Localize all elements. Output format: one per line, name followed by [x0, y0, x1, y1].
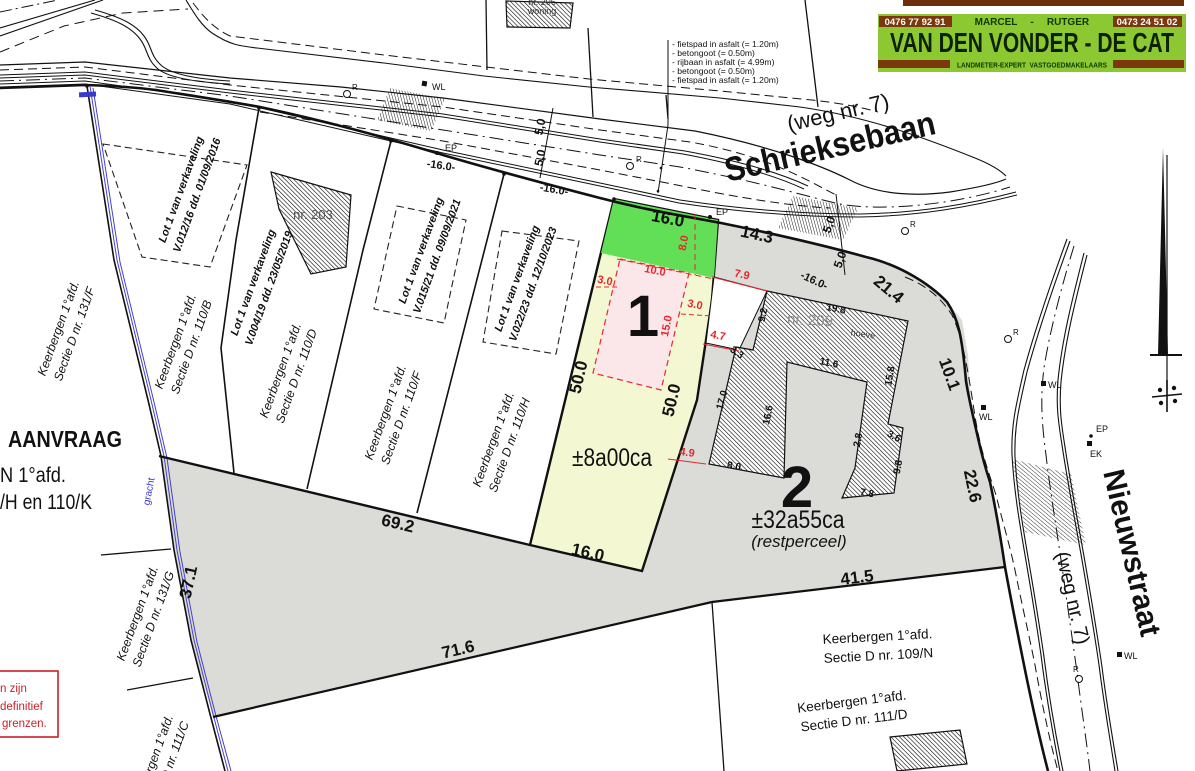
svg-text:EP: EP	[716, 207, 728, 217]
svg-text:/H en 110/K: /H en 110/K	[0, 491, 92, 514]
svg-text:nr. 209: nr. 209	[787, 311, 834, 330]
svg-text:R: R	[352, 83, 358, 92]
svg-text:R: R	[636, 155, 642, 164]
svg-text:EP: EP	[1096, 424, 1108, 434]
svg-text:WL: WL	[432, 82, 446, 92]
svg-text:1: 1	[627, 284, 659, 349]
svg-text:WL: WL	[1124, 651, 1138, 661]
svg-text:n zijn: n zijn	[0, 683, 27, 695]
svg-text:LANDMETER-EXPERT VASTGOEDMAKE: LANDMETER-EXPERT VASTGOEDMAKELAARS	[957, 61, 1107, 70]
svg-text:nr. 203: nr. 203	[293, 207, 333, 222]
svg-text:N 1°afd.: N 1°afd.	[0, 464, 66, 487]
svg-text:41.5: 41.5	[839, 566, 874, 589]
svg-text:WL: WL	[1048, 380, 1062, 390]
svg-text:woning: woning	[527, 6, 557, 16]
svg-text:definitief: definitief	[0, 701, 44, 713]
svg-text:EK: EK	[1090, 449, 1102, 459]
svg-text:(restperceel): (restperceel)	[751, 532, 846, 551]
svg-text:VAN DEN VONDER - DE CAT: VAN DEN VONDER - DE CAT	[890, 27, 1174, 58]
svg-text:R: R	[1013, 328, 1019, 337]
svg-text:4.9: 4.9	[679, 446, 696, 460]
svg-text:R: R	[910, 220, 916, 229]
svg-text:±32a55ca: ±32a55ca	[752, 506, 845, 534]
svg-text:- fietspad in asfalt (= 1.20m): - fietspad in asfalt (= 1.20m)	[672, 75, 779, 85]
svg-text:grenzen.: grenzen.	[2, 718, 47, 730]
svg-text:EP: EP	[445, 143, 457, 153]
svg-text:R: R	[1073, 665, 1079, 674]
svg-text:WL: WL	[979, 412, 993, 422]
svg-text:±8a00ca: ±8a00ca	[572, 444, 652, 472]
svg-text:AANVRAAG: AANVRAAG	[8, 426, 122, 452]
